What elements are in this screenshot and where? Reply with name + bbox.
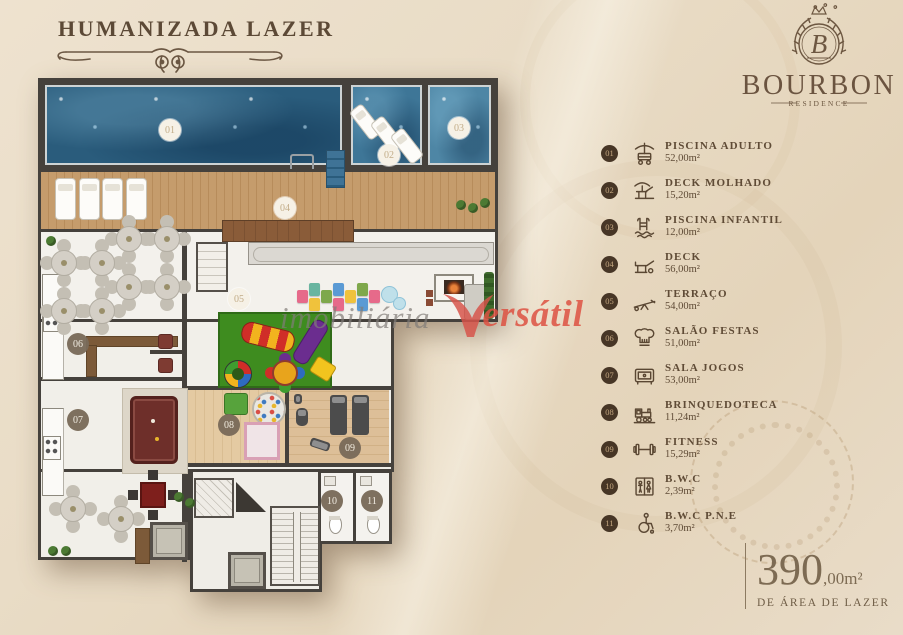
adult-pool (45, 85, 342, 165)
party-table (154, 274, 180, 300)
pool-handrail (290, 154, 314, 169)
total-area-value: 390 (757, 545, 823, 594)
legend-item-icon (629, 508, 659, 538)
legend-item-number: 01 (601, 145, 618, 162)
legend-item-area: 56,00m² (665, 264, 701, 277)
party-table (116, 274, 142, 300)
party-table (154, 226, 180, 252)
legend-item-label: DECK (665, 251, 701, 264)
hopscotch-square (333, 298, 344, 311)
games-table (108, 506, 134, 532)
legend-item-03: 03 PISCINA INFANTIL 12,00m² (601, 212, 896, 242)
legend-item-01: 01 PISCINA ADULTO 52,00m² (601, 138, 896, 168)
legend-item-icon (629, 249, 659, 279)
hopscotch-square (357, 298, 368, 311)
hedge (484, 272, 494, 319)
legend-item-label: FITNESS (665, 436, 719, 449)
planter-box (426, 299, 433, 306)
legend-item-text: TERRAÇO 54,00m² (665, 288, 728, 314)
area-marker-07: 07 (67, 409, 89, 431)
legend: 01 PISCINA ADULTO 52,00m² 02 DECK MOLHAD… (601, 138, 896, 538)
legend-item-area: 15,20m² (665, 190, 772, 203)
legend-item-number: 10 (601, 478, 618, 495)
exercise-bike (296, 408, 308, 426)
legend-item-label: BRINQUEDOTECA (665, 399, 778, 412)
billiard-ball (151, 419, 155, 423)
weight-rack (294, 394, 302, 404)
legend-item-text: SALÃO FESTAS 51,00m² (665, 325, 760, 351)
pool-steps (326, 150, 345, 188)
playroom-table (224, 393, 248, 415)
party-table (51, 298, 77, 324)
toy-table (272, 360, 298, 386)
legend-item-area: 3,70m² (665, 523, 737, 536)
legend-item-number: 09 (601, 441, 618, 458)
total-area: 390,00m² DE ÁREA DE LAZER (757, 548, 890, 609)
laurel-right-icon (827, 18, 846, 54)
legend-item-05: 05 TERRAÇO 54,00m² (601, 286, 896, 316)
area-marker-04: 04 (274, 197, 296, 219)
toilet (367, 516, 380, 534)
legend-item-number: 03 (601, 219, 618, 236)
plant (185, 498, 195, 508)
legend-item-02: 02 DECK MOLHADO 15,20m² (601, 175, 896, 205)
brand-name: BOURBON (742, 70, 896, 101)
card-table (140, 482, 166, 508)
sink (324, 476, 336, 486)
legend-item-number: 05 (601, 293, 618, 310)
legend-item-label: DECK MOLHADO (665, 177, 772, 190)
legend-item-icon (629, 323, 659, 353)
page: HUMANIZADA LAZER B BOURBON RESIDENCE (0, 0, 903, 635)
page-title: HUMANIZADA LAZER (58, 16, 335, 42)
legend-item-text: PISCINA ADULTO 52,00m² (665, 140, 773, 166)
hopscotch-square (321, 290, 332, 303)
legend-item-icon (629, 138, 659, 168)
stove (43, 436, 61, 460)
armchair (158, 358, 173, 373)
hopscotch-square (345, 290, 356, 303)
legend-item-number: 07 (601, 367, 618, 384)
legend-item-area: 15,29m² (665, 449, 719, 462)
plant (456, 200, 466, 210)
legend-item-label: B.W.C (665, 473, 701, 486)
toy-ring (224, 360, 252, 388)
terrace-wood-floor (222, 220, 354, 242)
total-area-caption: DE ÁREA DE LAZER (757, 597, 890, 609)
terrace-counter (248, 242, 494, 265)
billiard-ball (155, 437, 159, 441)
party-table (89, 298, 115, 324)
legend-item-text: FITNESS 15,29m² (665, 436, 719, 462)
legend-item-icon (629, 175, 659, 205)
party-table (51, 250, 77, 276)
legend-item-09: 09 FITNESS 15,29m² (601, 434, 896, 464)
legend-item-04: 04 DECK 56,00m² (601, 249, 896, 279)
area-marker-11: 11 (361, 490, 383, 512)
legend-item-text: PISCINA INFANTIL 12,00m² (665, 214, 783, 240)
games-table (60, 496, 86, 522)
legend-item-text: DECK MOLHADO 15,20m² (665, 177, 772, 203)
legend-item-text: SALA JOGOS 53,00m² (665, 362, 745, 388)
bar-counter-leg (86, 345, 97, 377)
treadmill (330, 395, 347, 435)
hopscotch-square (357, 283, 368, 296)
area-marker-01: 01 (159, 119, 181, 141)
legend-item-icon (629, 360, 659, 390)
elevator (228, 552, 266, 589)
brand-monogram: B (811, 29, 828, 59)
plant (468, 203, 478, 213)
plant (174, 492, 184, 502)
plant (61, 546, 71, 556)
play-mat (244, 422, 280, 460)
sink (360, 476, 372, 486)
planter-box (426, 290, 433, 297)
cabinet (135, 528, 150, 564)
area-marker-06: 06 (67, 333, 89, 355)
legend-item-icon (629, 286, 659, 316)
legend-item-icon (629, 212, 659, 242)
laurel-left-icon (792, 18, 811, 54)
legend-item-number: 11 (601, 515, 618, 532)
elevator (150, 522, 188, 560)
brand-subtitle: RESIDENCE (788, 99, 849, 108)
legend-item-text: B.W.C P.N.E 3,70m² (665, 510, 737, 536)
ball-pit (252, 392, 286, 426)
legend-item-icon (629, 434, 659, 464)
legend-item-label: B.W.C P.N.E (665, 510, 737, 523)
armchair (158, 334, 173, 349)
legend-item-label: TERRAÇO (665, 288, 728, 301)
hopscotch-square (309, 283, 320, 296)
plant (480, 198, 490, 208)
legend-item-area: 54,00m² (665, 301, 728, 314)
pool-area (38, 78, 498, 172)
legend-item-label: PISCINA ADULTO (665, 140, 773, 153)
brand-logo: B BOURBON RESIDENCE (733, 2, 903, 114)
legend-item-number: 06 (601, 330, 618, 347)
deck-lounger (55, 178, 76, 220)
legend-item-label: SALÃO FESTAS (665, 325, 760, 338)
party-table (89, 250, 115, 276)
party-table (116, 226, 142, 252)
legend-item-11: 11 B.W.C P.N.E 3,70m² (601, 508, 896, 538)
hopscotch-circle (393, 297, 406, 310)
hopscotch-square (297, 290, 308, 303)
legend-item-area: 2,39m² (665, 486, 701, 499)
legend-item-text: B.W.C 2,39m² (665, 473, 701, 499)
deck-lounger (126, 178, 147, 220)
grill-fire (444, 280, 464, 294)
counter-groove (253, 247, 489, 262)
toy-ring-center (232, 368, 244, 380)
legend-item-07: 07 SALA JOGOS 53,00m² (601, 360, 896, 390)
deck-lounger (102, 178, 123, 220)
area-marker-03: 03 (448, 117, 470, 139)
plant (46, 236, 56, 246)
total-area-divider (745, 543, 746, 609)
hopscotch-square (369, 290, 380, 303)
legend-item-08: 08 BRINQUEDOTECA 11,24m² (601, 397, 896, 427)
stair-flight (194, 478, 234, 518)
toilet (329, 516, 342, 534)
area-marker-05: 05 (228, 288, 250, 310)
legend-item-label: PISCINA INFANTIL (665, 214, 783, 227)
wall (353, 472, 356, 542)
treadmill (352, 395, 369, 435)
billiard-table (130, 396, 178, 464)
legend-item-area: 12,00m² (665, 227, 783, 240)
legend-item-area: 11,24m² (665, 412, 778, 425)
plant (48, 546, 58, 556)
terrace-stairs (196, 242, 228, 292)
legend-item-06: 06 SALÃO FESTAS 51,00m² (601, 323, 896, 353)
hopscotch-square (333, 283, 344, 296)
area-marker-09: 09 (339, 437, 361, 459)
legend-item-10: 10 B.W.C 2,39m² (601, 471, 896, 501)
legend-item-text: DECK 56,00m² (665, 251, 701, 277)
total-area-decimal: ,00m² (823, 569, 863, 588)
floor-plan: 0102030405060708091011 (38, 78, 498, 594)
staircase (270, 506, 320, 586)
legend-item-area: 52,00m² (665, 153, 773, 166)
crown-icon (812, 4, 837, 14)
legend-item-number: 04 (601, 256, 618, 273)
legend-item-icon (629, 397, 659, 427)
area-marker-10: 10 (321, 490, 343, 512)
legend-item-number: 08 (601, 404, 618, 421)
area-marker-02: 02 (378, 144, 400, 166)
stair-rail (293, 512, 301, 582)
legend-item-text: BRINQUEDOTECA 11,24m² (665, 399, 778, 425)
legend-item-icon (629, 471, 659, 501)
legend-item-area: 53,00m² (665, 375, 745, 388)
legend-item-label: SALA JOGOS (665, 362, 745, 375)
area-marker-08: 08 (218, 414, 240, 436)
title-flourish-ornament (52, 44, 288, 78)
legend-item-area: 51,00m² (665, 338, 760, 351)
hopscotch-square (309, 298, 320, 311)
half-wall (150, 350, 186, 354)
wall (184, 463, 392, 467)
legend-item-number: 02 (601, 182, 618, 199)
deck-lounger (79, 178, 100, 220)
